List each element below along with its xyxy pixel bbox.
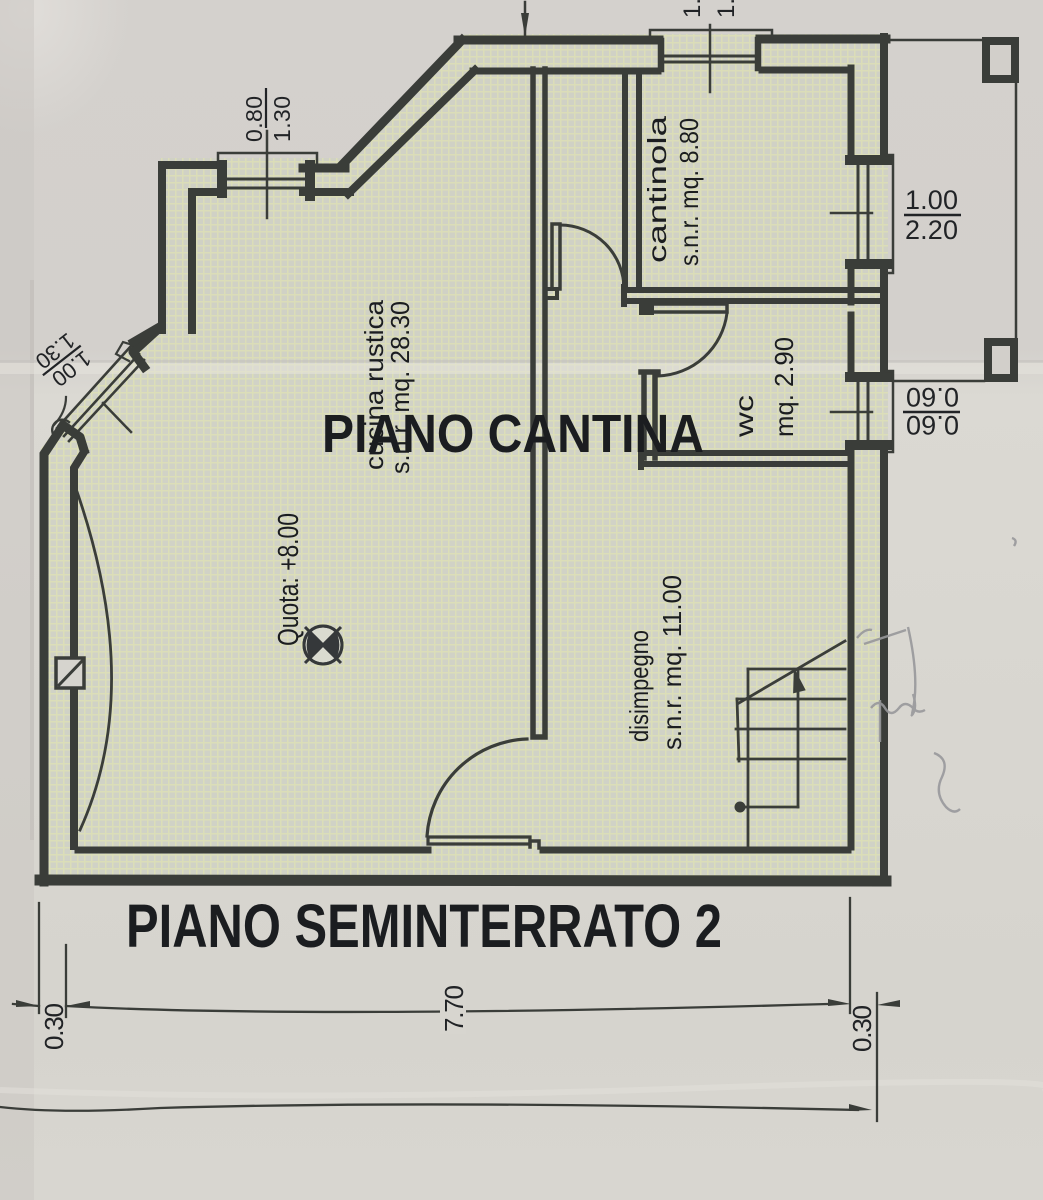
svg-text:1.15: 1.15 [679, 0, 706, 18]
svg-text:0.60: 0.60 [906, 410, 959, 440]
svg-text:mq. 2.90: mq. 2.90 [769, 337, 799, 437]
svg-text:cantinola: cantinola [642, 115, 672, 263]
svg-text:0.30: 0.30 [847, 1005, 877, 1052]
svg-text:7.70: 7.70 [439, 985, 469, 1032]
svg-text:0.60: 0.60 [906, 382, 959, 412]
svg-text:wc: wc [729, 395, 759, 438]
svg-text:0.80: 0.80 [241, 96, 267, 142]
svg-text:s.n.r. mq. 28.30: s.n.r. mq. 28.30 [385, 301, 415, 474]
svg-text:s.n.r. mq. 8.80: s.n.r. mq. 8.80 [674, 118, 704, 266]
svg-text:PIANO SEMINTERRATO 2: PIANO SEMINTERRATO 2 [126, 892, 722, 960]
svg-text:1.30: 1.30 [269, 96, 295, 142]
svg-text:s.n.r. mq. 11.00: s.n.r. mq. 11.00 [657, 575, 687, 750]
svg-text:disimpegno: disimpegno [624, 630, 654, 742]
svg-text:1.00: 1.00 [905, 185, 958, 215]
svg-text:0.30: 0.30 [39, 1003, 69, 1050]
svg-text:Quota: +8.00: Quota: +8.00 [273, 513, 305, 646]
svg-text:1.10: 1.10 [713, 0, 740, 18]
svg-text:2.20: 2.20 [905, 215, 958, 245]
